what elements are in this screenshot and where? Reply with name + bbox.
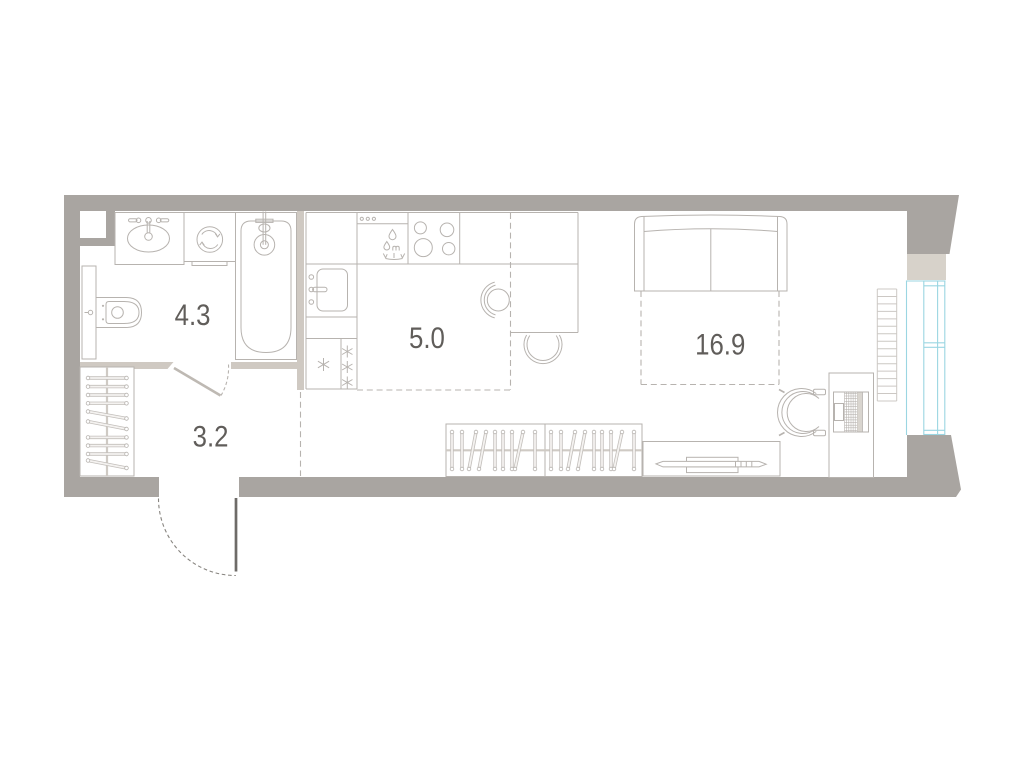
svg-text:4.3: 4.3: [175, 298, 211, 331]
svg-text:16.9: 16.9: [695, 327, 745, 360]
svg-text:3.2: 3.2: [193, 420, 229, 453]
svg-text:5.0: 5.0: [409, 321, 445, 354]
